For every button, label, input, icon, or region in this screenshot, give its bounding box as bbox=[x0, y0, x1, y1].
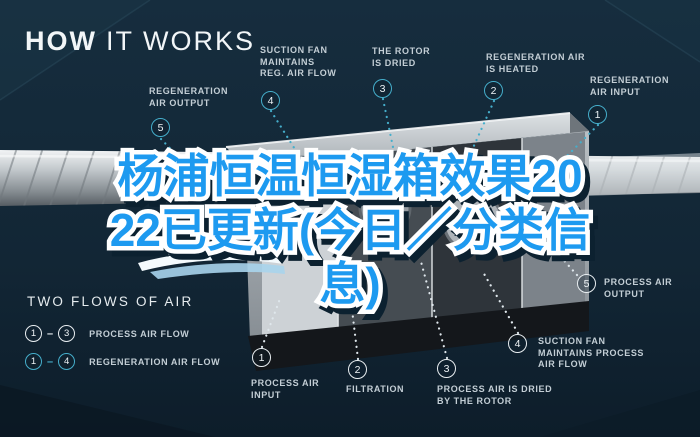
legend-label-process-air-flow: PROCESS AIR FLOW bbox=[89, 329, 189, 339]
label-regeneration-air-heated: REGENERATION AIR IS HEATED bbox=[486, 52, 585, 75]
badge-regen-1: 1 bbox=[588, 105, 607, 124]
badge-process-2: 2 bbox=[348, 360, 367, 379]
legend-circle-from: 1 bbox=[25, 353, 42, 370]
overlay-line: 22已更新(今日／分类信 bbox=[0, 203, 700, 257]
infographic-how-it-works: HOWIT WORKS REGENERATION AIR OUTPUT SUCT… bbox=[0, 0, 700, 437]
label-regeneration-air-input: REGENERATION AIR INPUT bbox=[590, 75, 669, 98]
label-suction-fan-process: SUCTION FAN MAINTAINS PROCESS AIR FLOW bbox=[538, 336, 644, 371]
legend-circle-to: 4 bbox=[58, 353, 75, 370]
legend-label-regeneration-air-flow: REGENERATION AIR FLOW bbox=[89, 357, 220, 367]
overlay-headline-fill-layer: 杨浦恒温恒湿箱效果20 22已更新(今日／分类信 息) bbox=[0, 149, 700, 311]
label-regeneration-air-output: REGENERATION AIR OUTPUT bbox=[149, 86, 228, 109]
badge-process-1: 1 bbox=[252, 348, 271, 367]
legend-range-dash: – bbox=[47, 328, 53, 340]
page-title-bold: HOW bbox=[25, 26, 97, 56]
page-title-light: IT WORKS bbox=[106, 26, 255, 56]
badge-process-4: 4 bbox=[508, 334, 527, 353]
overlay-headline: 杨浦恒温恒湿箱效果20 22已更新(今日／分类信 息) 杨浦恒温恒湿箱效果20 … bbox=[0, 149, 700, 319]
badge-process-3: 3 bbox=[437, 359, 456, 378]
badge-regen-4: 4 bbox=[261, 91, 280, 110]
legend-circle-from: 1 bbox=[25, 325, 42, 342]
badge-regen-5: 5 bbox=[151, 118, 170, 137]
legend-row-regeneration: 1 – 4 REGENERATION AIR FLOW bbox=[25, 353, 220, 370]
overlay-line: 息) bbox=[0, 257, 700, 311]
page-title: HOWIT WORKS bbox=[25, 26, 255, 57]
label-suction-fan-reg: SUCTION FAN MAINTAINS REG. AIR FLOW bbox=[260, 45, 336, 80]
legend-range-dash: – bbox=[47, 356, 53, 368]
badge-regen-2: 2 bbox=[484, 81, 503, 100]
legend-circle-to: 3 bbox=[58, 325, 75, 342]
label-process-air-dried: PROCESS AIR IS DRIED BY THE ROTOR bbox=[437, 384, 552, 407]
label-rotor-is-dried: THE ROTOR IS DRIED bbox=[372, 46, 430, 69]
legend-row-process: 1 – 3 PROCESS AIR FLOW bbox=[25, 325, 189, 342]
label-process-air-input: PROCESS AIR INPUT bbox=[251, 378, 319, 401]
label-filtration: FILTRATION bbox=[346, 384, 404, 396]
overlay-line: 杨浦恒温恒湿箱效果20 bbox=[0, 149, 700, 203]
badge-regen-3: 3 bbox=[373, 79, 392, 98]
